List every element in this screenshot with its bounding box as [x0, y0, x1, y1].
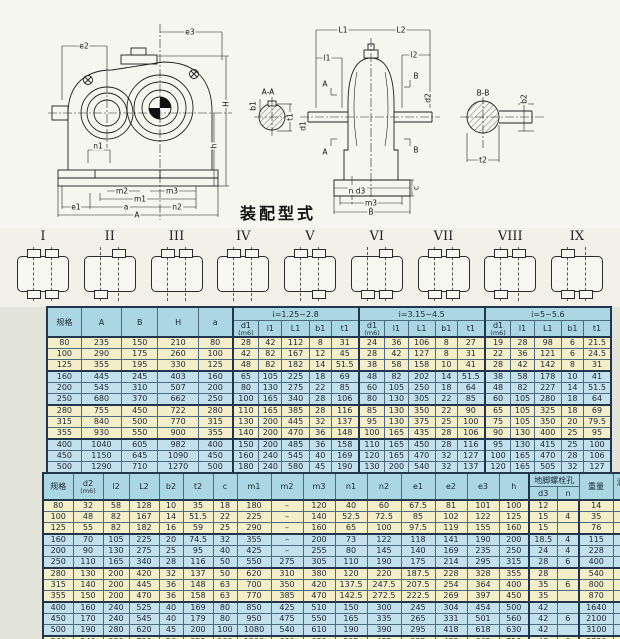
- value-cell: 210: [158, 337, 198, 349]
- value-cell: 142.5: [335, 591, 367, 603]
- value-cell: 700: [237, 580, 271, 591]
- spec-cell: 160: [43, 534, 73, 546]
- value-cell: 63: [213, 580, 237, 591]
- table-row-450: 4501702405454017980950475550165335265331…: [43, 614, 620, 625]
- value-cell: 385: [271, 591, 303, 603]
- value-cell: 500: [122, 417, 158, 428]
- table-row-100: 10048821671451.522225–14052.572.58510212…: [43, 512, 620, 523]
- header-e1: e1: [401, 473, 435, 500]
- value-cell: 100: [584, 439, 611, 451]
- sub-header-l1: l1: [385, 321, 408, 338]
- value-cell: 32: [309, 417, 331, 428]
- value-cell: 525: [129, 602, 159, 614]
- value-cell: 202: [408, 371, 435, 383]
- dim-label-n-d3: n d3: [348, 187, 367, 195]
- value-cell: 48: [233, 360, 259, 372]
- value-cell: 70: [73, 534, 103, 546]
- dim-label-t1: t1: [286, 112, 294, 122]
- value-cell: 28: [309, 394, 331, 406]
- value-cell: 200: [259, 417, 282, 428]
- value-cell: 31: [331, 337, 358, 349]
- value-cell: 100: [485, 451, 511, 462]
- value-cell: 59: [183, 523, 213, 535]
- value-cell: 121: [534, 349, 561, 360]
- value-cell: 14: [561, 383, 583, 394]
- spec-cell: 200: [43, 546, 73, 557]
- header-润滑油量: 润滑油量: [613, 473, 620, 500]
- value-cell: 70: [613, 591, 620, 603]
- value-cell: 22: [435, 405, 457, 417]
- value-cell: 158: [408, 360, 435, 372]
- value-cell: 80: [213, 602, 237, 614]
- value-cell: 82: [385, 371, 408, 383]
- value-cell: 116: [457, 439, 484, 451]
- value-cell: 28: [435, 428, 457, 440]
- value-cell: 130: [385, 405, 408, 417]
- value-cell: 560: [499, 614, 529, 625]
- value-cell: 60: [367, 500, 401, 512]
- sub-header-l1: l1: [259, 321, 282, 338]
- value-cell: 160: [73, 602, 103, 614]
- table-row-250: 2506803706622501001653402810680130305228…: [47, 394, 611, 406]
- value-cell: 60: [359, 383, 385, 394]
- value-cell: 85: [457, 394, 484, 406]
- value-cell: 90: [485, 428, 511, 440]
- value-cell: 58: [385, 360, 408, 372]
- value-cell: 540: [579, 568, 613, 580]
- section-mark-A-bottom: A: [321, 148, 328, 156]
- header-d2: d2(m6): [73, 473, 103, 500]
- value-cell: 14: [579, 500, 613, 512]
- value-cell: 4: [557, 534, 579, 546]
- value-cell: 269: [435, 591, 467, 603]
- dim-label-L2: L2: [396, 26, 407, 34]
- value-cell: 454: [467, 602, 499, 614]
- value-cell: 60: [485, 394, 511, 406]
- value-cell: 36: [613, 568, 620, 580]
- value-cell: 470: [282, 428, 309, 440]
- spec-cell: 125: [47, 360, 81, 372]
- reducer-outline: [151, 256, 203, 292]
- value-cell: 127: [457, 451, 484, 462]
- value-cell: 41: [584, 371, 611, 383]
- value-cell: 228: [435, 568, 467, 580]
- value-cell: 112: [282, 337, 309, 349]
- value-cell: 190: [467, 534, 499, 546]
- shaft-dimension-table: 规格ABHai=1.25~2.8i=3.15~4.5i=5~5.6d1(m6)l…: [46, 306, 612, 486]
- value-cell: 165: [385, 439, 408, 451]
- value-cell: 240: [103, 602, 129, 614]
- sub-header-t1: t1: [457, 321, 484, 338]
- header-3: H: [158, 307, 198, 337]
- value-cell: 265: [401, 614, 435, 625]
- table-row-500: 5001902806204520010010805406101903902954…: [43, 625, 620, 637]
- value-cell: 982: [158, 439, 198, 451]
- value-cell: 630: [499, 625, 529, 637]
- value-cell: 507: [158, 383, 198, 394]
- value-cell: 305: [408, 394, 435, 406]
- value-cell: [557, 602, 579, 614]
- value-cell: 36: [309, 439, 331, 451]
- value-cell: 840: [81, 417, 121, 428]
- value-cell: 82: [511, 383, 534, 394]
- value-cell: 85: [401, 512, 435, 523]
- value-cell: 6: [561, 337, 583, 349]
- value-cell: 51.5: [584, 383, 611, 394]
- table1-wrap: 规格ABHai=1.25~2.8i=3.15~4.5i=5~5.6d1(m6)l…: [0, 306, 620, 486]
- assembly-type-label: VIII: [479, 228, 541, 246]
- value-cell: 325: [534, 405, 561, 417]
- value-cell: 140: [73, 580, 103, 591]
- reducer-drawing: [0, 0, 620, 228]
- assembly-type-IX: IX: [546, 228, 608, 307]
- table-row-160: 160701052252074.532355–20073122118141190…: [43, 534, 620, 546]
- table-row-125: 12535519533012548821821451.5385815810412…: [47, 360, 611, 372]
- dim-label-a: a: [123, 203, 130, 211]
- value-cell: 179: [183, 614, 213, 625]
- value-cell: 228: [579, 546, 613, 557]
- value-cell: 350: [408, 405, 435, 417]
- value-cell: 28: [529, 568, 557, 580]
- value-cell: 82: [103, 512, 129, 523]
- header-规格: 规格: [43, 473, 73, 500]
- assembly-caption: 装配型式: [240, 200, 316, 224]
- reducer-outline: [351, 256, 403, 292]
- value-cell: 106: [408, 337, 435, 349]
- dim-label-L1: L1: [338, 26, 349, 34]
- value-cell: 275: [271, 557, 303, 569]
- value-cell: 160: [198, 371, 232, 383]
- table-row-280: 2807554507222801101653852811685130350229…: [47, 405, 611, 417]
- value-cell: 445: [81, 371, 121, 383]
- value-cell: 2100: [579, 614, 613, 625]
- shaft-stub-tr: [379, 249, 393, 258]
- spec-cell: 400: [47, 439, 81, 451]
- value-cell: 225: [282, 371, 309, 383]
- assembly-type-label: I: [12, 228, 74, 246]
- shaft-stub-br: [45, 290, 59, 299]
- value-cell: 73: [335, 534, 367, 546]
- value-cell: 120: [303, 500, 335, 512]
- value-cell: 42: [529, 602, 557, 614]
- value-cell: 28: [435, 439, 457, 451]
- value-cell: 1640: [579, 602, 613, 614]
- value-cell: 190: [73, 625, 103, 637]
- value-cell: 435: [408, 428, 435, 440]
- shaft-stub-bl: [561, 290, 575, 299]
- value-cell: 8: [435, 337, 457, 349]
- value-cell: 85: [331, 383, 358, 394]
- spec-cell: 355: [47, 428, 81, 440]
- value-cell: 150: [335, 602, 367, 614]
- assembly-type-IV: IV: [212, 228, 274, 307]
- value-cell: 662: [158, 394, 198, 406]
- value-cell: 200: [499, 534, 529, 546]
- value-cell: 148: [331, 428, 358, 440]
- assembly-type-label: V: [279, 228, 341, 246]
- value-cell: 6: [557, 557, 579, 569]
- header-L2: L2: [129, 473, 159, 500]
- header-b2: b2: [159, 473, 183, 500]
- value-cell: 295: [401, 625, 435, 637]
- value-cell: 160: [303, 523, 335, 535]
- value-cell: 14: [435, 371, 457, 383]
- value-cell: [557, 523, 579, 535]
- value-cell: 141: [435, 534, 467, 546]
- value-cell: 145: [367, 546, 401, 557]
- value-cell: 95: [183, 546, 213, 557]
- value-cell: 130: [385, 394, 408, 406]
- value-cell: 200: [103, 580, 129, 591]
- value-cell: 81: [435, 500, 467, 512]
- header-0: 规格: [47, 307, 81, 337]
- value-cell: 470: [408, 451, 435, 462]
- reducer-outline: [551, 256, 603, 292]
- spec-cell: 280: [43, 568, 73, 580]
- value-cell: 200: [183, 625, 213, 637]
- value-cell: 110: [73, 557, 103, 569]
- header-2: B: [122, 307, 158, 337]
- value-cell: 400: [198, 439, 232, 451]
- value-cell: 31: [457, 349, 484, 360]
- value-cell: 28: [511, 337, 534, 349]
- dim-label-h: h: [210, 143, 218, 150]
- value-cell: 105: [511, 417, 534, 428]
- value-cell: 240: [103, 614, 129, 625]
- value-cell: 65: [233, 371, 259, 383]
- shaft-stub-tl: [428, 249, 442, 258]
- value-cell: 32: [159, 568, 183, 580]
- value-cell: 275: [129, 546, 159, 557]
- value-cell: 28: [159, 557, 183, 569]
- table-row-315: 3158405007703151302004453213795130375251…: [47, 417, 611, 428]
- reducer-outline: [17, 256, 69, 292]
- ratio-group-header: i=5~5.6: [485, 307, 611, 321]
- value-cell: 110: [359, 439, 385, 451]
- spec-cell: 80: [47, 337, 81, 349]
- value-cell: 40: [159, 602, 183, 614]
- value-cell: 545: [129, 614, 159, 625]
- shaft-stub-bl: [94, 290, 108, 299]
- value-cell: 16: [159, 523, 183, 535]
- value-cell: 3100: [579, 625, 613, 637]
- value-cell: 175: [401, 557, 435, 569]
- header-m3: m3: [303, 473, 335, 500]
- ratio-group-header: i=3.15~4.5: [359, 307, 485, 321]
- table-row-315: 3151402004453614863700350420137.5247.520…: [43, 580, 620, 591]
- sub-header-d1: d1(m6): [233, 321, 259, 338]
- value-cell: 200: [259, 428, 282, 440]
- value-cell: 18: [435, 383, 457, 394]
- dim-label-c: c: [412, 185, 420, 191]
- value-cell: 225: [129, 534, 159, 546]
- value-cell: 8: [309, 337, 331, 349]
- value-cell: 130: [511, 439, 534, 451]
- value-cell: 25: [213, 523, 237, 535]
- value-cell: 770: [237, 591, 271, 603]
- table2-wrap: 规格d2(m6)l2L2b2t2cm1m2m3n1n2e1e2e3h地脚螺栓孔重…: [0, 472, 620, 639]
- sub-header-t1: t1: [584, 321, 611, 338]
- value-cell: 18: [561, 405, 583, 417]
- value-cell: 14: [159, 512, 183, 523]
- header-m1: m1: [237, 473, 271, 500]
- value-cell: 280: [198, 405, 232, 417]
- value-cell: 550: [122, 428, 158, 440]
- value-cell: 180: [613, 625, 620, 637]
- value-cell: –: [271, 534, 303, 546]
- value-cell: 130: [73, 568, 103, 580]
- spec-cell: 500: [43, 625, 73, 637]
- value-cell: 400: [534, 428, 561, 440]
- value-cell: 340: [129, 557, 159, 569]
- shaft-stub-br: [379, 290, 393, 299]
- dim-label-e3: e3: [184, 28, 195, 36]
- reducer-outline: [418, 256, 470, 292]
- value-cell: 182: [129, 523, 159, 535]
- value-cell: 36: [159, 580, 183, 591]
- value-cell: 82: [103, 523, 129, 535]
- value-cell: 420: [129, 568, 159, 580]
- value-cell: 1080: [237, 625, 271, 637]
- value-cell: 137.5: [335, 580, 367, 591]
- assembly-type-I: I: [12, 228, 74, 307]
- value-cell: 20: [159, 534, 183, 546]
- value-cell: 165: [335, 614, 367, 625]
- value-cell: 82: [259, 349, 282, 360]
- dim-label-n2: n2: [171, 203, 183, 211]
- value-cell: 375: [408, 417, 435, 428]
- reducer-outline: [484, 256, 536, 292]
- value-cell: 130: [511, 428, 534, 440]
- value-cell: 425: [237, 546, 271, 557]
- dim-label-d2: d2: [424, 92, 432, 104]
- value-cell: 475: [271, 614, 303, 625]
- header-h: h: [499, 473, 529, 500]
- value-cell: 310: [122, 383, 158, 394]
- value-cell: 106: [457, 428, 484, 440]
- value-cell: 390: [367, 625, 401, 637]
- value-cell: 10: [435, 360, 457, 372]
- value-cell: 170: [73, 614, 103, 625]
- value-cell: 102: [435, 512, 467, 523]
- value-cell: 165: [103, 557, 129, 569]
- value-cell: 20: [561, 417, 583, 428]
- value-cell: 6: [557, 614, 579, 625]
- value-cell: 207.5: [401, 580, 435, 591]
- value-cell: 58: [511, 371, 534, 383]
- value-cell: 45: [331, 349, 358, 360]
- spec-cell: 355: [43, 591, 73, 603]
- value-cell: 137: [331, 417, 358, 428]
- value-cell: 550: [237, 557, 271, 569]
- assembly-type-VI: VI: [346, 228, 408, 307]
- value-cell: 130: [103, 546, 129, 557]
- value-cell: 415: [534, 439, 561, 451]
- value-cell: 950: [237, 614, 271, 625]
- value-cell: 12: [309, 349, 331, 360]
- value-cell: 385: [282, 405, 309, 417]
- value-cell: 38: [359, 360, 385, 372]
- value-cell: 31: [584, 360, 611, 372]
- header-m2: m2: [271, 473, 303, 500]
- value-cell: 165: [511, 451, 534, 462]
- shaft-stub-br: [579, 290, 593, 299]
- value-cell: 200: [198, 383, 232, 394]
- value-cell: 355: [237, 534, 271, 546]
- shaft-stub-tr: [312, 249, 326, 258]
- value-cell: 450: [408, 439, 435, 451]
- value-cell: 50: [213, 557, 237, 569]
- value-cell: 355: [499, 568, 529, 580]
- value-cell: 25: [561, 439, 583, 451]
- value-cell: 169: [331, 451, 358, 462]
- value-cell: 67.5: [401, 500, 435, 512]
- value-cell: 105: [511, 405, 534, 417]
- value-cell: 76: [579, 523, 613, 535]
- value-cell: 25: [561, 428, 583, 440]
- value-cell: 370: [122, 394, 158, 406]
- value-cell: 335: [367, 614, 401, 625]
- value-cell: 182: [282, 360, 309, 372]
- fit-note: (m6): [486, 330, 511, 336]
- value-cell: 250: [499, 546, 529, 557]
- value-cell: 618: [467, 625, 499, 637]
- value-cell: 125: [499, 512, 529, 523]
- dim-label-b2: b2: [520, 93, 528, 105]
- value-cell: 28: [529, 557, 557, 569]
- value-cell: 295: [467, 557, 499, 569]
- value-cell: 40: [159, 614, 183, 625]
- value-cell: 95: [359, 417, 385, 428]
- value-cell: 150: [73, 591, 103, 603]
- value-cell: 620: [129, 625, 159, 637]
- value-cell: –: [271, 546, 303, 557]
- dim-label-n1: n1: [92, 142, 104, 150]
- value-cell: 100: [499, 500, 529, 512]
- assembly-type-II: II: [79, 228, 141, 307]
- value-cell: 150: [122, 337, 158, 349]
- shaft-stub-br: [446, 290, 460, 299]
- value-cell: 35: [529, 580, 557, 591]
- value-cell: 0.9: [613, 500, 620, 512]
- assembly-type-label: VI: [346, 228, 408, 246]
- table-row-400: 4001040605982400150200485361581101654502…: [47, 439, 611, 451]
- value-cell: 32: [213, 534, 237, 546]
- front-view: [48, 24, 232, 220]
- shaft-stub-tr: [512, 249, 526, 258]
- value-cell: 80: [335, 546, 367, 557]
- value-cell: 169: [435, 546, 467, 557]
- spec-cell: 280: [47, 405, 81, 417]
- value-cell: 540: [271, 625, 303, 637]
- value-cell: 501: [467, 614, 499, 625]
- sub-header-n: n: [557, 487, 579, 501]
- value-cell: 10: [561, 371, 583, 383]
- value-cell: 155: [467, 523, 499, 535]
- table-row-200: 20090130275259540425–2558014514016923525…: [43, 546, 620, 557]
- shaft-stub-tl: [27, 249, 41, 258]
- value-cell: 130: [259, 383, 282, 394]
- value-cell: 140: [401, 546, 435, 557]
- value-cell: 160: [499, 523, 529, 535]
- reducer-outline: [284, 256, 336, 292]
- value-cell: 75: [485, 417, 511, 428]
- value-cell: 148: [183, 580, 213, 591]
- shaft-stub-tl: [161, 249, 175, 258]
- fit-note: (m6): [360, 330, 385, 336]
- section-mark-A-top: A: [321, 80, 328, 88]
- value-cell: 55: [73, 523, 103, 535]
